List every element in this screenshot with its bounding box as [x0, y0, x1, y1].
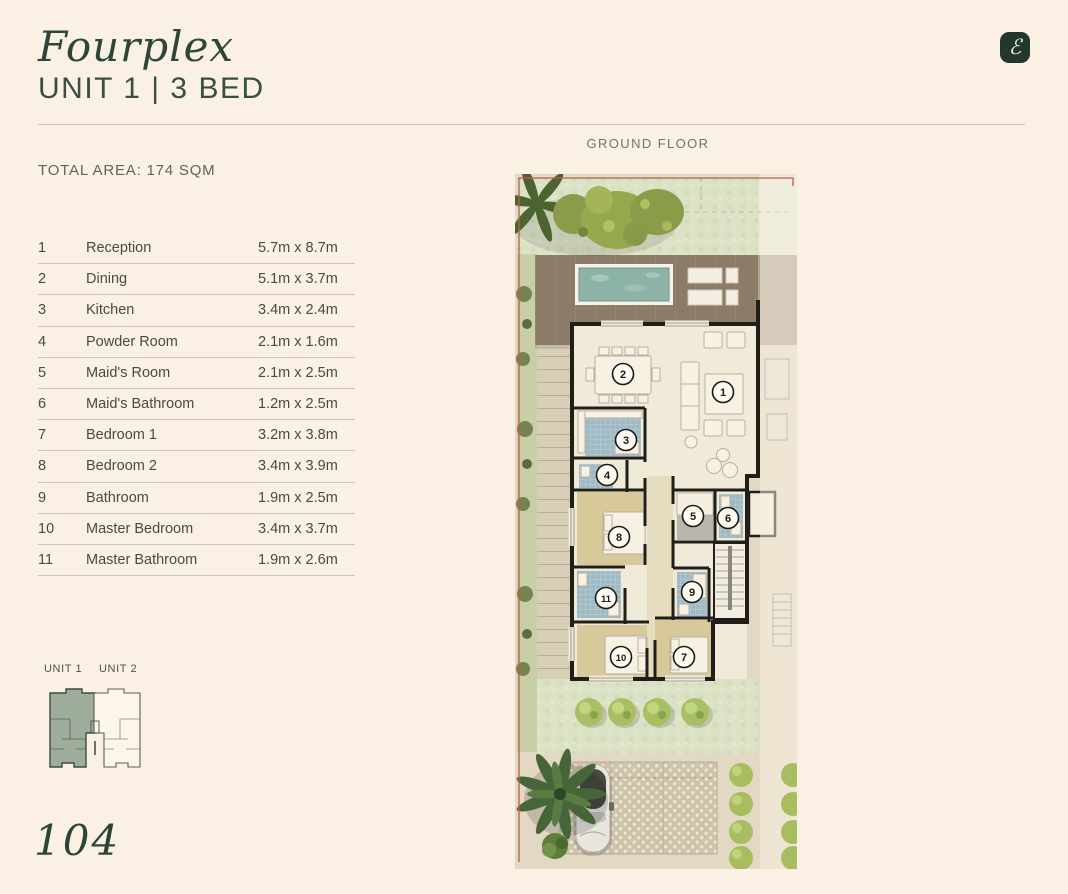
room-marker: 11 — [596, 588, 617, 609]
room-marker: 8 — [609, 527, 630, 548]
page-title: Fourplex — [38, 24, 265, 70]
room-marker: 4 — [597, 465, 618, 486]
room-dimensions: 1.9m x 2.6m — [258, 552, 355, 568]
room-number: 10 — [38, 521, 86, 537]
room-marker: 9 — [682, 582, 703, 603]
monogram-icon: ℰ — [1009, 37, 1022, 58]
room-marker: 7 — [674, 647, 695, 668]
room-name: Master Bathroom — [86, 552, 258, 568]
page-subtitle: UNIT 1 | 3 BED — [38, 72, 265, 106]
svg-text:1: 1 — [720, 387, 726, 399]
floor-label: GROUND FLOOR — [560, 136, 736, 151]
room-dimensions: 5.7m x 8.7m — [258, 240, 355, 256]
svg-text:7: 7 — [681, 652, 687, 664]
room-dimensions: 3.4m x 3.9m — [258, 458, 355, 474]
room-name: Bedroom 1 — [86, 427, 258, 443]
room-dimensions: 1.2m x 2.5m — [258, 396, 355, 412]
room-number: 3 — [38, 302, 86, 318]
table-row: 9Bathroom1.9m x 2.5m — [38, 483, 355, 514]
table-row: 6Maid's Bathroom1.2m x 2.5m — [38, 389, 355, 420]
brand-logo: ℰ — [1000, 32, 1030, 63]
room-number: 6 — [38, 396, 86, 412]
room-marker: 6 — [718, 508, 739, 529]
svg-text:11: 11 — [601, 594, 612, 605]
room-dimensions: 3.4m x 2.4m — [258, 302, 355, 318]
svg-text:3: 3 — [623, 435, 629, 447]
room-number: 11 — [38, 552, 86, 568]
table-row: 7Bedroom 13.2m x 3.8m — [38, 420, 355, 451]
unit-locator: UNIT 1 UNIT 2 — [40, 663, 150, 788]
svg-text:5: 5 — [690, 511, 696, 523]
brochure-page: Fourplex UNIT 1 | 3 BED ℰ TOTAL AREA: 17… — [0, 0, 1068, 894]
room-number: 7 — [38, 427, 86, 443]
room-name: Bedroom 2 — [86, 458, 258, 474]
room-name: Bathroom — [86, 490, 258, 506]
unit2-shape — [94, 689, 140, 767]
room-name: Maid's Bathroom — [86, 396, 258, 412]
room-marker: 2 — [613, 364, 634, 385]
room-dimensions: 3.2m x 3.8m — [258, 427, 355, 443]
svg-text:8: 8 — [616, 532, 622, 544]
svg-text:6: 6 — [725, 513, 731, 525]
header-divider — [38, 124, 1025, 125]
room-number: 5 — [38, 365, 86, 381]
table-row: 1Reception5.7m x 8.7m — [38, 233, 355, 264]
room-marker: 10 — [611, 647, 632, 668]
table-row: 11Master Bathroom1.9m x 2.6m — [38, 545, 355, 576]
room-marker: 3 — [616, 430, 637, 451]
room-dimensions: 5.1m x 3.7m — [258, 271, 355, 287]
room-name: Master Bedroom — [86, 521, 258, 537]
unit1-label: UNIT 1 — [44, 663, 82, 675]
svg-text:9: 9 — [689, 587, 695, 599]
table-row: 2Dining5.1m x 3.7m — [38, 264, 355, 295]
room-table: 1Reception5.7m x 8.7m2Dining5.1m x 3.7m3… — [38, 233, 355, 576]
room-marker: 5 — [683, 506, 704, 527]
table-row: 10Master Bedroom3.4m x 3.7m — [38, 514, 355, 545]
unit2-label: UNIT 2 — [99, 663, 137, 675]
header: Fourplex UNIT 1 | 3 BED — [38, 24, 265, 106]
svg-text:4: 4 — [604, 470, 611, 482]
room-name: Dining — [86, 271, 258, 287]
locator-map — [40, 679, 150, 779]
room-name: Powder Room — [86, 334, 258, 350]
room-name: Kitchen — [86, 302, 258, 318]
room-dimensions: 2.1m x 2.5m — [258, 365, 355, 381]
bush — [542, 833, 568, 859]
floor-plan: 1234567891011 — [515, 174, 797, 869]
table-row: 8Bedroom 23.4m x 3.9m — [38, 451, 355, 482]
room-number: 1 — [38, 240, 86, 256]
room-dimensions: 1.9m x 2.5m — [258, 490, 355, 506]
stairs — [714, 543, 746, 619]
room-number: 4 — [38, 334, 86, 350]
svg-text:2: 2 — [620, 369, 626, 381]
room-number: 2 — [38, 271, 86, 287]
room-number: 8 — [38, 458, 86, 474]
table-row: 4Powder Room2.1m x 1.6m — [38, 327, 355, 358]
total-area-label: TOTAL AREA: 174 SQM — [38, 162, 215, 179]
room-name: Maid's Room — [86, 365, 258, 381]
unit1-shape — [50, 689, 96, 767]
room-name: Reception — [86, 240, 258, 256]
room-dimensions: 3.4m x 3.7m — [258, 521, 355, 537]
room-dimensions: 2.1m x 1.6m — [258, 334, 355, 350]
room-marker: 1 — [713, 382, 734, 403]
room-number: 9 — [38, 490, 86, 506]
page-number: 104 — [34, 816, 120, 865]
table-row: 3Kitchen3.4m x 2.4m — [38, 295, 355, 326]
table-row: 5Maid's Room2.1m x 2.5m — [38, 358, 355, 389]
svg-text:10: 10 — [616, 653, 627, 664]
